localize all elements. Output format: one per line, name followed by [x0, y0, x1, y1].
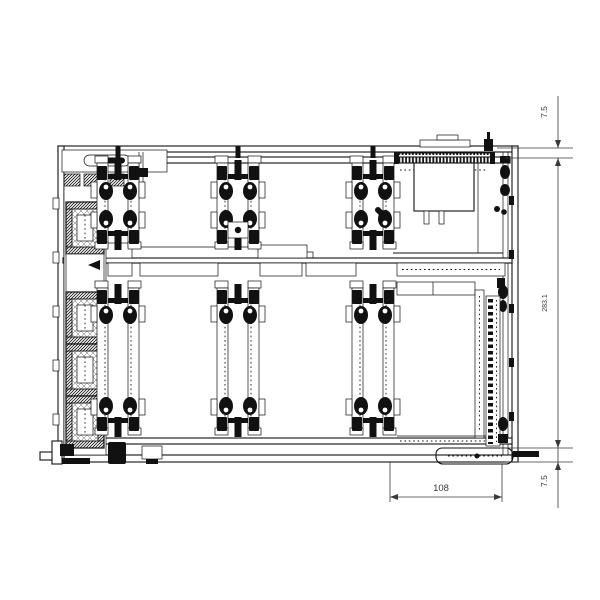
mounting-hole	[235, 227, 241, 233]
card-guide-left-upper	[91, 156, 145, 250]
wall-clip	[509, 250, 514, 259]
dimension-top-right: 7.5	[497, 96, 573, 166]
pcb-mounting-hole	[494, 206, 500, 212]
card-guide-right-lower	[346, 281, 400, 437]
wall-tab	[53, 306, 59, 317]
pcb-mounting-hole	[377, 209, 383, 215]
dim-label-right-overall: 283.1	[542, 294, 549, 312]
right-latch-roller	[498, 417, 508, 431]
wall-tab	[53, 252, 59, 263]
foot-plate-hole	[475, 454, 480, 459]
card-guide-middle-lower	[211, 281, 265, 437]
left-latch-body	[108, 442, 126, 464]
arrowhead	[555, 462, 561, 470]
dim-label-bottom-right: 7.5	[539, 475, 549, 487]
left-foot-pad	[146, 459, 158, 464]
mid-rail-segment	[108, 263, 132, 276]
mid-plate-box	[258, 245, 307, 258]
mid-rail-segment	[306, 263, 356, 276]
bay-top-strip	[397, 282, 475, 295]
mid-rail-segment	[260, 263, 302, 276]
component-leg	[439, 211, 444, 224]
wall-clip	[509, 412, 514, 421]
right-latch-bottom	[498, 434, 508, 443]
chassis-top-view-drawing: 7.5 283.1 7.5 108	[0, 0, 600, 600]
mid-cross-rail	[63, 258, 512, 263]
alignment-pin	[371, 146, 376, 158]
wall-clip	[509, 196, 514, 205]
rear-component-pin	[487, 132, 490, 139]
right-latch-roller	[500, 184, 510, 196]
wall-tab	[53, 360, 59, 371]
wall-clip	[509, 304, 514, 313]
left-latch-block	[60, 444, 74, 456]
arrowhead	[494, 494, 502, 500]
technical-drawing-canvas: 7.5 283.1 7.5 108	[0, 0, 600, 600]
wall-tab	[53, 198, 59, 209]
wall-clip	[509, 358, 514, 367]
mounting-hole	[501, 209, 507, 215]
left-foot-block	[142, 446, 162, 459]
rear-component	[484, 139, 493, 151]
card-guide-left-lower	[91, 281, 145, 437]
card-guide-assemblies	[91, 146, 400, 437]
dimension-bottom-width: 108	[390, 462, 502, 502]
right-latch-top	[500, 156, 510, 163]
alignment-pin	[236, 146, 241, 158]
connector-end-block	[490, 152, 495, 164]
card-edge-connector	[397, 153, 492, 163]
arrowhead	[555, 140, 561, 148]
rear-connector-bump	[437, 135, 458, 140]
rear-connector-block	[420, 140, 470, 147]
arrowhead	[555, 440, 561, 448]
transformer-component	[414, 163, 474, 211]
mid-rail-segment	[140, 263, 218, 276]
card-guide-right-upper	[346, 156, 400, 250]
left-latch-bar	[62, 458, 90, 464]
wall-tab	[53, 414, 59, 425]
right-foot-tab	[513, 451, 539, 457]
dim-label-top-right: 7.5	[539, 106, 549, 118]
right-latch-roller	[500, 165, 510, 179]
dimension-right-overall: 283.1	[542, 158, 561, 448]
dim-label-bottom-width: 108	[433, 483, 449, 494]
alignment-pin	[116, 146, 121, 158]
arrowhead	[390, 494, 398, 500]
gasket-block	[64, 174, 80, 186]
component-leg	[424, 211, 429, 224]
connector-end-block	[394, 152, 399, 164]
